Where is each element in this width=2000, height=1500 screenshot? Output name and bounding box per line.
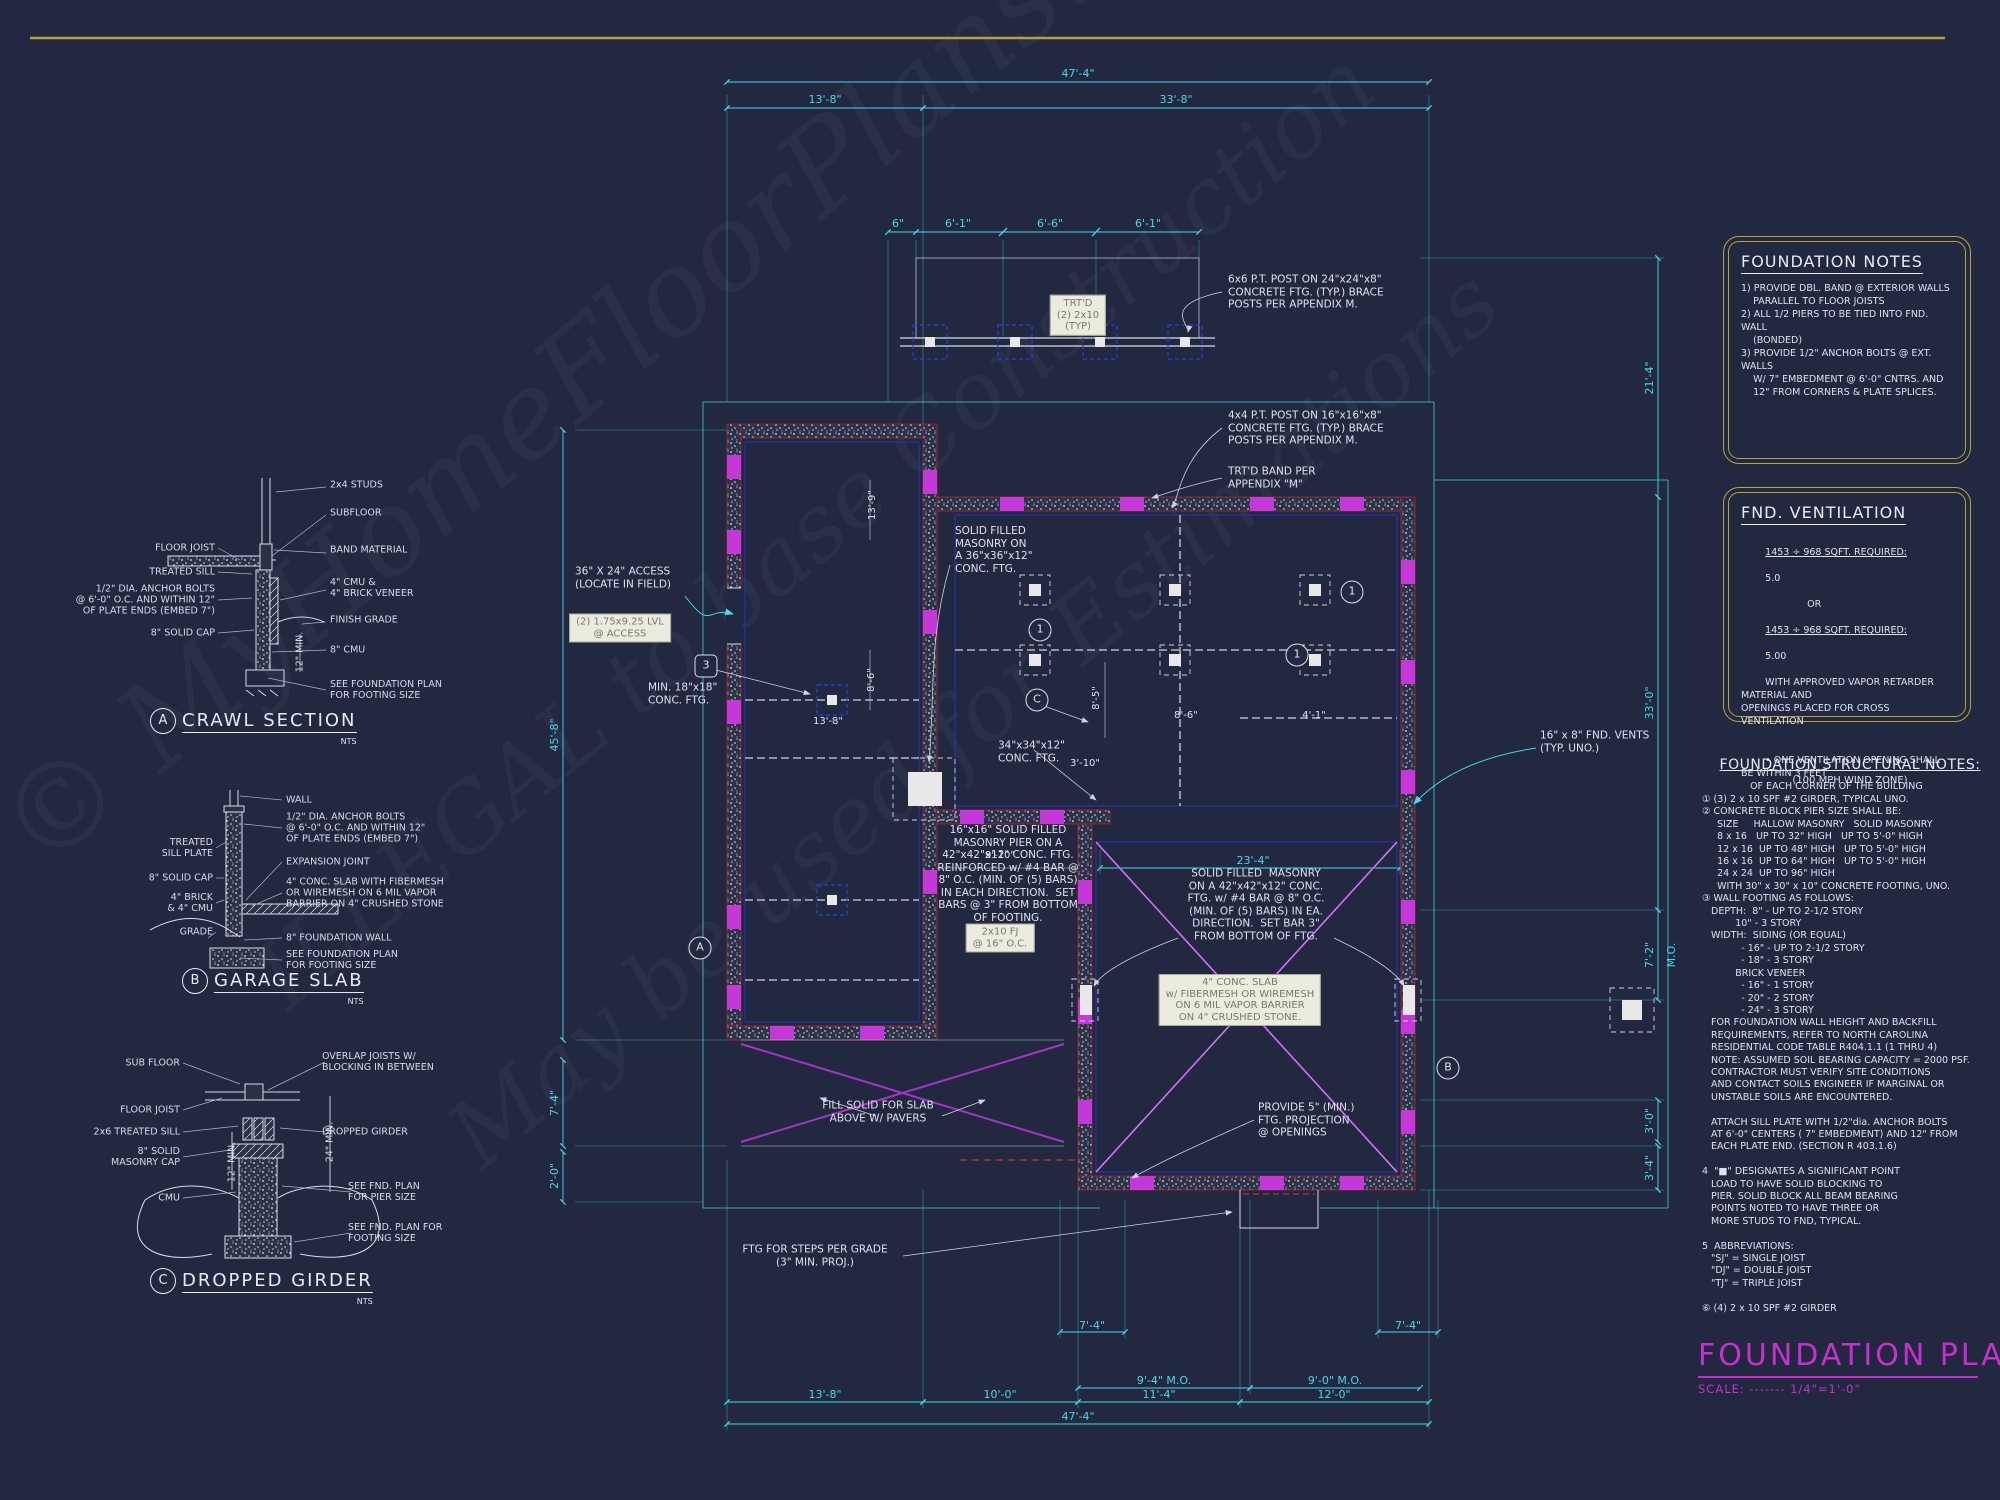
dimension-label: 13'-8" <box>808 1389 841 1401</box>
dimension-label: 3'-0" <box>1644 1108 1656 1134</box>
plan-annotation: 4" CONC. SLAB w/ FIBERMESH OR WIREMESH O… <box>1159 974 1321 1026</box>
interior-dimension-label: 8'-6" <box>1174 710 1198 722</box>
detail-title-text: CRAWL SECTION <box>182 710 357 733</box>
detail-label: TREATED SILL PLATE <box>162 837 213 859</box>
plan-annotation: 4x4 P.T. POST ON 16"x16"x8" CONCRETE FTG… <box>1228 409 1384 447</box>
detail-label: WALL <box>286 795 312 806</box>
detail-title-text: GARAGE SLAB <box>214 970 364 993</box>
detail-label: GRADE <box>180 927 213 938</box>
interior-dimension-label: 4'-1" <box>1302 710 1326 722</box>
interior-dimension-label: 13'-9" <box>867 490 879 520</box>
dimension-label: 7'-4" <box>1395 1320 1421 1332</box>
detail-title-dropped-girder: C DROPPED GIRDER NTS <box>150 1268 373 1294</box>
detail-label: 4" CMU & 4" BRICK VENEER <box>330 577 413 599</box>
detail-label: FLOOR JOIST <box>120 1105 180 1116</box>
structural-notes-body: ① (3) 2 x 10 SPF #2 GIRDER, TYPICAL UNO.… <box>1702 794 1998 1315</box>
detail-title-crawl-section: A CRAWL SECTION NTS <box>150 708 357 734</box>
detail-label: 1/2" DIA. ANCHOR BOLTS @ 6'-0" O.C. AND … <box>76 584 215 617</box>
foundation-structural-notes: FOUNDATION STRUCTURAL NOTES: (100 MPH WI… <box>1702 757 1998 1315</box>
detail-label: FINISH GRADE <box>330 615 398 626</box>
plan-annotation: 16" x 8" FND. VENTS (TYP. UNO.) <box>1540 730 1649 755</box>
plan-reference-tag: 1 <box>1341 581 1364 604</box>
dimension-label: 3'-4" <box>1644 1155 1656 1181</box>
vent-req-1: 1453 ÷ 968 SQFT. REQUIRED: <box>1765 547 1907 558</box>
detail-label: TREATED SILL <box>149 567 215 578</box>
detail-label: SUB FLOOR <box>126 1058 181 1069</box>
detail-label: 2x6 TREATED SILL <box>94 1127 180 1138</box>
title-block: FOUNDATION PLAN SCALE: ------- 1/4"=1'-0… <box>1698 1338 1978 1396</box>
dimension-label: 47'-4" <box>1061 68 1094 80</box>
detail-label: CMU <box>158 1193 180 1204</box>
plan-annotation: TRT'D BAND PER APPENDIX "M" <box>1228 466 1316 491</box>
detail-scale: NTS <box>348 997 364 1006</box>
plan-reference-tag: B <box>1437 1057 1460 1080</box>
interior-dimension-label: 8'-5" <box>1091 686 1103 710</box>
detail-title-garage-slab: B GARAGE SLAB NTS <box>182 968 364 994</box>
detail-scale: NTS <box>357 1297 373 1306</box>
interior-dimension-label: 3'-10" <box>1070 758 1100 770</box>
plan-reference-tag: 3 <box>695 655 718 678</box>
detail-label: SEE FND. PLAN FOR FOOTING SIZE <box>348 1222 442 1244</box>
structural-notes-title: FOUNDATION STRUCTURAL NOTES: <box>1702 757 1998 773</box>
plan-annotation: FTG FOR STEPS PER GRADE (3" MIN. PROJ.) <box>742 1244 887 1269</box>
plan-annotation: 34"x34"x12" CONC. FTG. <box>998 740 1065 765</box>
detail-label: 8" CMU <box>330 645 365 656</box>
dimension-label: 21'-4" <box>1644 361 1656 394</box>
dimension-label: 13'-8" <box>808 94 841 106</box>
detail-label: FLOOR JOIST <box>155 543 215 554</box>
plan-annotation: FILL SOLID FOR SLAB ABOVE W/ PAVERS <box>822 1100 934 1125</box>
detail-tag: C <box>150 1268 176 1294</box>
detail-label: 12" MIN. <box>295 632 306 673</box>
detail-label: 24" MIN. <box>325 1122 336 1163</box>
dimension-label: 6" <box>892 218 904 230</box>
plan-annotation: SOLID FILLED MASONRY ON A 42"x42"x12" CO… <box>1188 868 1325 943</box>
dimension-label: 6'-6" <box>1037 218 1063 230</box>
dimension-label: 45'-8" <box>549 718 561 751</box>
dimension-label: 23'-4" <box>1236 855 1269 867</box>
detail-tag: A <box>150 708 176 734</box>
foundation-plan-sheet: © MyHomeFloorPlans.com ILLEGAL to base C… <box>0 0 2000 1500</box>
dimension-label: 2'-0" <box>549 1163 561 1189</box>
plan-reference-tag: 1 <box>1029 619 1052 642</box>
dimension-label: 33'-8" <box>1159 94 1192 106</box>
plan-annotation: SOLID FILLED MASONRY ON A 36"x36"x12" CO… <box>955 525 1033 575</box>
dimension-label: 7'-2" <box>1644 942 1656 968</box>
dimension-label: 9'-0" M.O. <box>1308 1375 1362 1387</box>
dimension-label: 12'-0" <box>1317 1389 1350 1401</box>
detail-label: 2x4 STUDS <box>330 480 383 491</box>
dimension-label: 47'-4" <box>1061 1411 1094 1423</box>
detail-label: SEE FOUNDATION PLAN FOR FOOTING SIZE <box>286 949 398 971</box>
plan-annotation: PROVIDE 5" (MIN.) FTG. PROJECTION @ OPEN… <box>1258 1101 1354 1139</box>
detail-label: EXPANSION JOINT <box>286 857 370 868</box>
plan-annotation: 2x10 FJ @ 16" O.C. <box>966 924 1035 953</box>
plan-annotation: 6x6 P.T. POST ON 24"x24"x8" CONCRETE FTG… <box>1228 273 1384 311</box>
detail-label: SEE FND. PLAN FOR PIER SIZE <box>348 1181 420 1203</box>
interior-dimension-label: 13'-8" <box>813 716 843 728</box>
foundation-notes-box: FOUNDATION NOTES 1) PROVIDE DBL. BAND @ … <box>1723 236 1971 464</box>
dimension-label: 11'-4" <box>1142 1389 1175 1401</box>
plan-annotation: 16"x16" SOLID FILLED MASONRY PIER ON A 4… <box>937 824 1078 924</box>
detail-label: 1/2" DIA. ANCHOR BOLTS @ 6'-0" O.C. AND … <box>286 812 425 845</box>
dimension-label: 7'-4" <box>1079 1320 1105 1332</box>
structural-notes-subtitle: (100 MPH WIND ZONE) <box>1702 775 1998 786</box>
dimension-label: 6'-1" <box>1135 218 1161 230</box>
detail-title-text: DROPPED GIRDER <box>182 1270 373 1293</box>
detail-label: SEE FOUNDATION PLAN FOR FOOTING SIZE <box>330 679 442 701</box>
plan-annotation: (2) 1.75x9.25 LVL @ ACCESS <box>569 614 671 643</box>
detail-label: 4" CONC. SLAB WITH FIBERMESH OR WIREMESH… <box>286 877 444 910</box>
plan-annotation: MIN. 18"x18" CONC. FTG. <box>648 682 717 707</box>
detail-label: 8" SOLID CAP <box>151 628 215 639</box>
vent-val-2: 5.00 <box>1765 651 1786 662</box>
interior-dimension-label: 8'-6" <box>866 668 878 692</box>
dimension-label: M.O. <box>1666 943 1678 968</box>
detail-label: BAND MATERIAL <box>330 545 407 556</box>
detail-label: 8" FOUNDATION WALL <box>286 933 392 944</box>
fnd-ventilation-box: FND. VENTILATION 1453 ÷ 968 SQFT. REQUIR… <box>1723 487 1971 722</box>
dimension-label: 33'-0" <box>1644 686 1656 719</box>
dimension-label: 7'-4" <box>549 1090 561 1116</box>
plan-reference-tag: 1 <box>1286 644 1309 667</box>
plan-annotation: TRT'D (2) 2x10 (TYP) <box>1050 295 1106 336</box>
foundation-notes-body: 1) PROVIDE DBL. BAND @ EXTERIOR WALLS PA… <box>1741 282 1953 399</box>
dimension-label: 9'-4" M.O. <box>1137 1375 1191 1387</box>
vent-req-2: 1453 ÷ 968 SQFT. REQUIRED: <box>1765 625 1907 636</box>
dimension-label: 10'-0" <box>983 1389 1016 1401</box>
detail-label: OVERLAP JOISTS W/ BLOCKING IN BETWEEN <box>322 1051 434 1073</box>
plan-reference-tag: A <box>689 937 712 960</box>
foundation-notes-title: FOUNDATION NOTES <box>1741 252 1923 274</box>
sheet-title: FOUNDATION PLAN <box>1698 1338 1978 1378</box>
dimension-label: 6'-1" <box>945 218 971 230</box>
detail-label: 8" SOLID MASONRY CAP <box>111 1146 180 1168</box>
detail-label: 4" BRICK & 4" CMU <box>167 892 213 914</box>
vent-val-1: 5.0 <box>1765 573 1780 584</box>
plan-annotation: 36" X 24" ACCESS (LOCATE IN FIELD) <box>575 566 671 591</box>
detail-label: SUBFLOOR <box>330 508 381 519</box>
plan-reference-tag: C <box>1026 689 1049 712</box>
vent-body: WITH APPROVED VAPOR RETARDER MATERIAL AN… <box>1741 677 1937 727</box>
detail-label: 12" MIN. <box>227 1142 238 1183</box>
detail-label: 8" SOLID CAP <box>149 873 213 884</box>
fnd-ventilation-title: FND. VENTILATION <box>1741 503 1906 525</box>
sheet-scale: SCALE: ------- 1/4"=1'-0" <box>1698 1382 1978 1396</box>
detail-tag: B <box>182 968 208 994</box>
detail-scale: NTS <box>341 737 357 746</box>
vent-or: OR <box>1765 599 1821 610</box>
